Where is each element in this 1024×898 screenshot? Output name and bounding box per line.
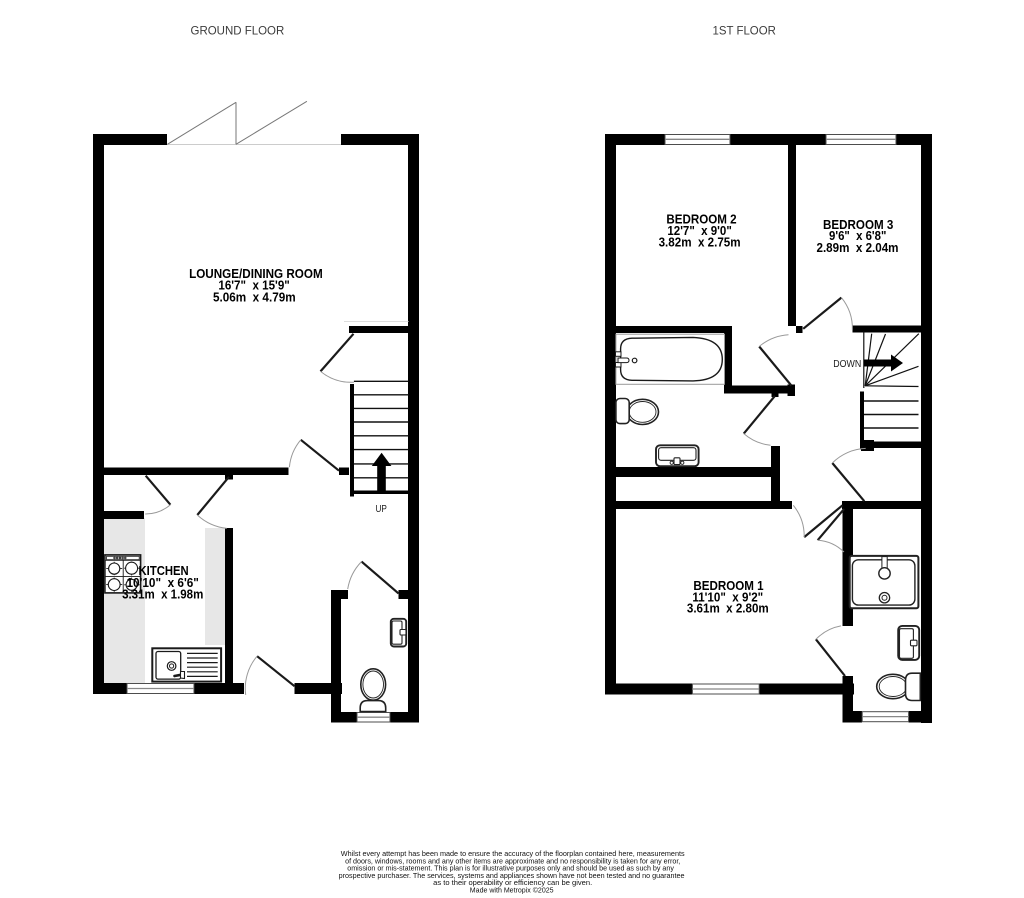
svg-text:UP: UP [376, 503, 387, 515]
svg-text:5.06m x 4.79m: 5.06m x 4.79m [213, 289, 296, 304]
svg-text:GROUND FLOOR: GROUND FLOOR [191, 23, 285, 37]
svg-text:DOWN: DOWN [833, 358, 861, 370]
svg-text:3.31m x 1.98m: 3.31m x 1.98m [122, 586, 203, 601]
svg-text:Made with Metropix ©2025: Made with Metropix ©2025 [470, 886, 554, 895]
svg-text:2.89m x 2.04m: 2.89m x 2.04m [817, 240, 899, 255]
svg-text:3.61m x 2.80m: 3.61m x 2.80m [687, 601, 769, 616]
svg-text:3.82m x 2.75m: 3.82m x 2.75m [659, 235, 741, 250]
svg-text:1ST FLOOR: 1ST FLOOR [713, 23, 776, 37]
